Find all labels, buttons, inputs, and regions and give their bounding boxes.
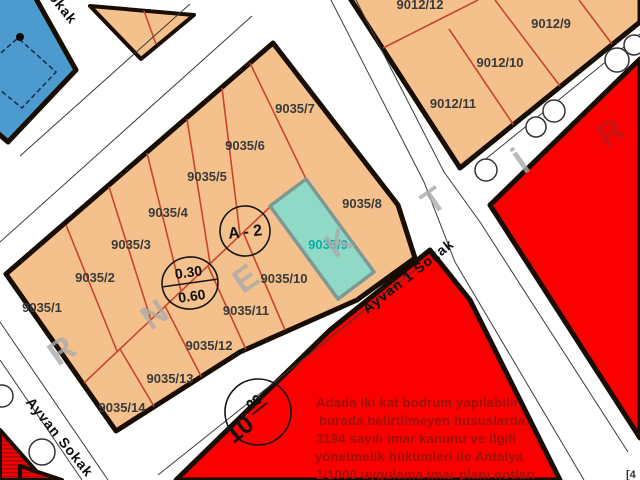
parcel-label-9035-5: 9035/5 — [187, 169, 227, 184]
cadastral-map: 9035/1 9035/2 9035/3 9035/4 9035/5 9035/… — [0, 0, 640, 480]
plan-note-line-2: burada belirtilmeyen hususlarda — [319, 413, 526, 428]
parcel-label-9035-2: 9035/2 — [75, 270, 115, 285]
plan-note-line-4: yönetmelik hükümleri ile Antalya — [315, 449, 524, 464]
parcel-label-9035-1: 9035/1 — [22, 300, 62, 315]
parcel-label-9012-10: 9012/10 — [477, 55, 524, 70]
plan-note-line-3: 3194 sayılı imar kanunu ve ilgili — [316, 431, 516, 446]
tree-circle-icon — [475, 159, 497, 181]
parcel-label-9035-10: 9035/10 — [261, 271, 308, 286]
parcel-label-9012-12: 9012/12 — [397, 0, 444, 12]
survey-point-dot — [16, 33, 24, 41]
cadastral-map-screenshot: 9035/1 9035/2 9035/3 9035/4 9035/5 9035/… — [0, 0, 640, 480]
parcel-label-9035-6: 9035/6 — [225, 138, 265, 153]
plan-note-line-1: Adada iki kat bodrum yapılabilir — [316, 395, 519, 410]
tree-circle-icon — [543, 100, 565, 122]
tree-circle-icon — [526, 117, 546, 137]
parcel-label-9035-3: 9035/3 — [111, 237, 151, 252]
plan-note-line-5: 1/1000 uygulama imar planı notları — [316, 467, 535, 480]
parcel-label-9035-14: 9035/14 — [99, 400, 147, 415]
tree-circle-icon — [605, 48, 629, 72]
parcel-label-9012-11: 9012/11 — [430, 96, 476, 111]
corner-label-fragment: [4 — [626, 469, 637, 480]
parcel-label-9035-7: 9035/7 — [275, 101, 315, 116]
parcel-label-9035-12: 9035/12 — [186, 338, 233, 353]
zone-label: A - 2 — [227, 222, 263, 242]
plan-note: Adada iki kat bodrum yapılabilir burada … — [315, 395, 535, 480]
parcel-label-9035-11: 9035/11 — [223, 303, 269, 318]
parcel-label-9035-13: 9035/13 — [147, 371, 194, 386]
tree-circle-icon — [29, 439, 55, 465]
parcel-label-9035-4: 9035/4 — [148, 205, 189, 220]
tree-circle-icon — [624, 35, 640, 55]
parcel-label-9035-8: 9035/8 — [342, 196, 382, 211]
parcel-label-9012-9: 9012/9 — [531, 16, 571, 31]
